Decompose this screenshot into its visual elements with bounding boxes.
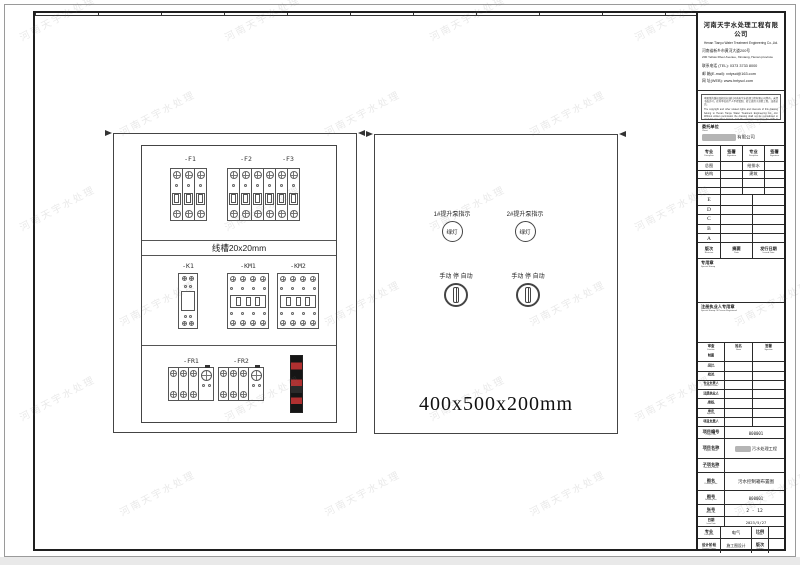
sheet-no-value: 2 - 12 xyxy=(724,505,784,516)
relay-k1 xyxy=(178,273,198,329)
scale-value xyxy=(768,527,784,538)
field-label-en: Drawing Title xyxy=(705,483,718,485)
field-label-en: Scale xyxy=(757,534,762,536)
sheet-no-row: 张号Sheet No. 2 - 12 xyxy=(698,504,784,516)
special-stamp-area: 专用章 Special Stamp xyxy=(698,258,784,302)
top-ruler-marks xyxy=(35,13,784,16)
col-header-en: Discipline xyxy=(704,155,713,157)
corner-mark-icon xyxy=(619,131,626,137)
sign-row: 审定Approved xyxy=(698,408,784,417)
discipline-table: 专业Discipline 签署Signature 专业Discipline 签署… xyxy=(698,145,784,194)
stage-edition-row: 设计阶段Design Phase 施工图设计 版次Edition xyxy=(698,538,784,553)
sign-row: 专业负责人Discipline Leader xyxy=(698,380,784,389)
subitem-value xyxy=(724,459,784,472)
col-header-en: Signature xyxy=(764,349,772,351)
table-cell xyxy=(752,215,784,224)
contactor-label-km1: -KM1 xyxy=(240,262,256,270)
indicator-group-1: 1#提升泵指示 绿灯 xyxy=(426,209,478,242)
sign-row: 项目负责人Project Leader xyxy=(698,417,784,426)
drawing-no-row: 图号Drawing No. 000001 xyxy=(698,490,784,504)
table-cell xyxy=(752,206,784,215)
field-label-en: Discipline xyxy=(704,534,713,536)
terminal-strip xyxy=(290,355,303,413)
sign-table-header: 审查Function 姓名Name 签署Signature xyxy=(698,342,784,352)
table-cell: 给排水 xyxy=(742,162,764,170)
mounting-plate: -F1 -F2 -F3 线槽20x20mm -K1 -KM1 -KM2 xyxy=(141,145,337,423)
col-header-en: Discipline xyxy=(749,155,758,157)
special-stamp-label-cn: 专用章 xyxy=(701,261,715,266)
title-block: 河南天宇水处理工程有限公司 Henan Tianyu Water Treatme… xyxy=(696,13,784,549)
table-cell xyxy=(720,206,752,215)
selector-switch-2 xyxy=(516,283,540,307)
col-header-en: Revision xyxy=(705,252,713,254)
table-cell xyxy=(752,225,784,234)
company-name-en: Henan Tianyu Water Treatment Engineering… xyxy=(702,41,780,45)
company-email: 邮 箱(E-mail): xxtyscl@163.com xyxy=(702,71,780,78)
contactor-km1 xyxy=(227,273,269,329)
table-cell xyxy=(752,195,784,205)
breaker-group-f1 xyxy=(170,168,207,221)
registered-stamp-label-cn: 注册执业人专用章 xyxy=(701,305,737,310)
copyright-notice-en: The copyright and other related rights a… xyxy=(704,108,778,120)
field-label-en: Sub-item Name xyxy=(703,467,718,469)
drawing-title-row: 图名Drawing Title 污水控制箱布置图 xyxy=(698,472,784,490)
sign-row: 校对Checked xyxy=(698,371,784,380)
green-lamp-1: 绿灯 xyxy=(442,221,463,242)
table-cell xyxy=(720,195,752,205)
thermal-label-fr1: -FR1 xyxy=(183,357,199,365)
table-cell xyxy=(720,179,742,187)
thermal-relay-fr2 xyxy=(218,367,264,401)
registered-stamp-label-en: Special Stamp Of Person Registered xyxy=(701,310,737,312)
indicator-group-2: 2#提升泵指示 绿灯 xyxy=(499,209,551,242)
table-cell xyxy=(698,179,720,187)
drawing-no-value: 000001 xyxy=(724,491,784,504)
breaker-pole xyxy=(287,168,300,221)
wire-duct: 线槽20x20mm xyxy=(142,240,336,256)
wire-duct-label: 线槽20x20mm xyxy=(212,242,266,254)
table-cell xyxy=(720,225,752,234)
thermal-relay-fr1 xyxy=(168,367,214,401)
indicator-2-label: 2#提升泵指示 xyxy=(499,209,551,218)
project-no-value: 000001 xyxy=(724,427,784,438)
sign-table-rows: 制图Drawn设计Designed校对Checked专业负责人Disciplin… xyxy=(698,352,784,426)
indicator-1-label: 1#提升泵指示 xyxy=(426,209,478,218)
corner-mark-icon xyxy=(105,130,112,136)
breaker-label-f2: -F2 xyxy=(240,155,252,163)
project-name-row: 项目名称Project Name 污水处理工程 xyxy=(698,438,784,458)
field-label-en: Issue Date xyxy=(706,523,715,525)
table-cell xyxy=(752,234,784,242)
page-bottom-strip xyxy=(0,557,800,565)
stage-value: 施工图设计 xyxy=(720,539,751,553)
lamp-2-text: 绿灯 xyxy=(519,228,530,236)
field-label-en: Design Phase xyxy=(702,548,716,550)
client-section: 委托单位 Client 有限公司 xyxy=(698,122,784,145)
section-divider xyxy=(142,345,336,346)
table-cell xyxy=(764,162,784,170)
contactor-label-km2: -KM2 xyxy=(290,262,306,270)
company-web: 网 址(WEB): www.hntyscl.com xyxy=(702,78,780,85)
edition-value xyxy=(768,539,784,553)
col-header-en: Signature xyxy=(770,155,779,157)
cabinet-front-view: 1#提升泵指示 绿灯 2#提升泵指示 绿灯 手动 停 自动 手动 停 自动 40… xyxy=(374,134,618,434)
table-cell xyxy=(764,171,784,179)
table-cell xyxy=(720,215,752,224)
table-cell: 结构 xyxy=(698,171,720,179)
cabinet-back-view: -F1 -F2 -F3 线槽20x20mm -K1 -KM1 -KM2 xyxy=(113,133,357,433)
lamp-1-text: 绿灯 xyxy=(446,228,457,236)
switch-handle-icon xyxy=(453,287,459,303)
copyright-notice-box: 本图纸的版权及相关权益归河南天宇水处理工程有限公司所有，未经书面许可，任何单位和… xyxy=(701,94,781,120)
sign-row: 注册执业人Registered Person xyxy=(698,389,784,398)
table-cell: 建筑 xyxy=(742,171,764,179)
discipline-value: 电气 xyxy=(720,527,751,538)
revision-letter: A xyxy=(698,234,720,242)
project-name-value: 污水处理工程 xyxy=(752,446,777,452)
revision-letter: D xyxy=(698,206,720,215)
client-name-suffix: 有限公司 xyxy=(737,135,755,140)
company-address-en: 200 Yellow River Avenue, Xinxiang, Henan… xyxy=(702,55,780,60)
project-name-redacted xyxy=(735,446,751,452)
field-label-en: Drawing No. xyxy=(705,499,717,501)
breaker-group-f2-f3 xyxy=(227,168,300,221)
switch-1-label: 手动 停 自动 xyxy=(430,271,482,280)
revision-letter: C xyxy=(698,215,720,224)
revision-header: 版次Revision 摘要Date 发行日期Issued Date xyxy=(698,242,784,258)
col-header-en: Function xyxy=(707,349,714,351)
sign-row: 设计Designed xyxy=(698,361,784,370)
copyright-notice-section: 本图纸的版权及相关权益归河南天宇水处理工程有限公司所有，未经书面许可，任何单位和… xyxy=(698,90,784,122)
col-header-en: Date xyxy=(734,252,739,254)
revision-letter: B xyxy=(698,225,720,234)
issue-date-row: 日期Issue Date 2023/5/27 xyxy=(698,516,784,526)
company-tel: 联系电话 (TEL): 0373 3733 8000 xyxy=(702,63,780,70)
col-header-en: Signature xyxy=(727,155,736,157)
table-cell xyxy=(720,234,752,242)
switch-2-label: 手动 停 自动 xyxy=(502,271,554,280)
corner-mark-icon xyxy=(358,130,365,136)
relay-label-k1: -K1 xyxy=(182,262,194,270)
client-name-redacted xyxy=(702,134,736,141)
issue-date-value: 2023/5/27 xyxy=(724,517,784,526)
col-header-en: Name xyxy=(736,349,741,351)
drawing-sheet: -F1 -F2 -F3 线槽20x20mm -K1 -KM1 -KM2 xyxy=(0,0,800,565)
enclosure-dimension-label: 400x500x200mm xyxy=(375,393,617,416)
selector-switch-group-2: 手动 停 自动 xyxy=(502,271,554,307)
drawing-frame: -F1 -F2 -F3 线槽20x20mm -K1 -KM1 -KM2 xyxy=(33,11,786,551)
special-stamp-label-en: Special Stamp xyxy=(701,266,715,268)
discipline-scale-row: 专业Discipline 电气 比例Scale xyxy=(698,526,784,538)
field-label-en: Project No. xyxy=(706,434,717,436)
table-cell: 总图 xyxy=(698,162,720,170)
breaker-pole xyxy=(194,168,207,221)
breaker-label-f3: -F3 xyxy=(282,155,294,163)
subitem-row: 子项名称Sub-item Name xyxy=(698,458,784,472)
revision-rows: E D C B A xyxy=(698,194,784,242)
col-header-en: Issued Date xyxy=(763,252,775,254)
table-cell xyxy=(720,171,742,179)
contactor-km2 xyxy=(277,273,319,329)
company-name-cn: 河南天宇水处理工程有限公司 xyxy=(702,20,780,38)
project-no-row: 项目编号Project No. 000001 xyxy=(698,426,784,438)
corner-mark-icon xyxy=(366,131,373,137)
selector-switch-group-1: 手动 停 自动 xyxy=(430,271,482,307)
registered-stamp-area: 注册执业人专用章 Special Stamp Of Person Registe… xyxy=(698,302,784,342)
thermal-label-fr2: -FR2 xyxy=(233,357,249,365)
copyright-notice-cn: 本图纸的版权及相关权益归河南天宇水处理工程有限公司所有，未经书面许可，任何单位和… xyxy=(704,97,778,106)
sign-row: 审核Reviewed xyxy=(698,398,784,407)
drawing-title-value: 污水控制箱布置图 xyxy=(724,473,784,490)
revision-letter: E xyxy=(698,195,720,205)
table-cell xyxy=(764,179,784,187)
table-cell xyxy=(720,162,742,170)
switch-handle-icon xyxy=(525,287,531,303)
breaker-label-f1: -F1 xyxy=(184,155,196,163)
client-label-en: Client xyxy=(702,130,780,132)
field-label-en: Sheet No. xyxy=(706,512,716,514)
sign-row: 制图Drawn xyxy=(698,352,784,361)
selector-switch-1 xyxy=(444,283,468,307)
field-label-en: Project Name xyxy=(704,450,717,452)
green-lamp-2: 绿灯 xyxy=(515,221,536,242)
table-cell xyxy=(742,179,764,187)
field-label-en: Edition xyxy=(757,548,764,550)
company-header: 河南天宇水处理工程有限公司 Henan Tianyu Water Treatme… xyxy=(698,13,784,90)
